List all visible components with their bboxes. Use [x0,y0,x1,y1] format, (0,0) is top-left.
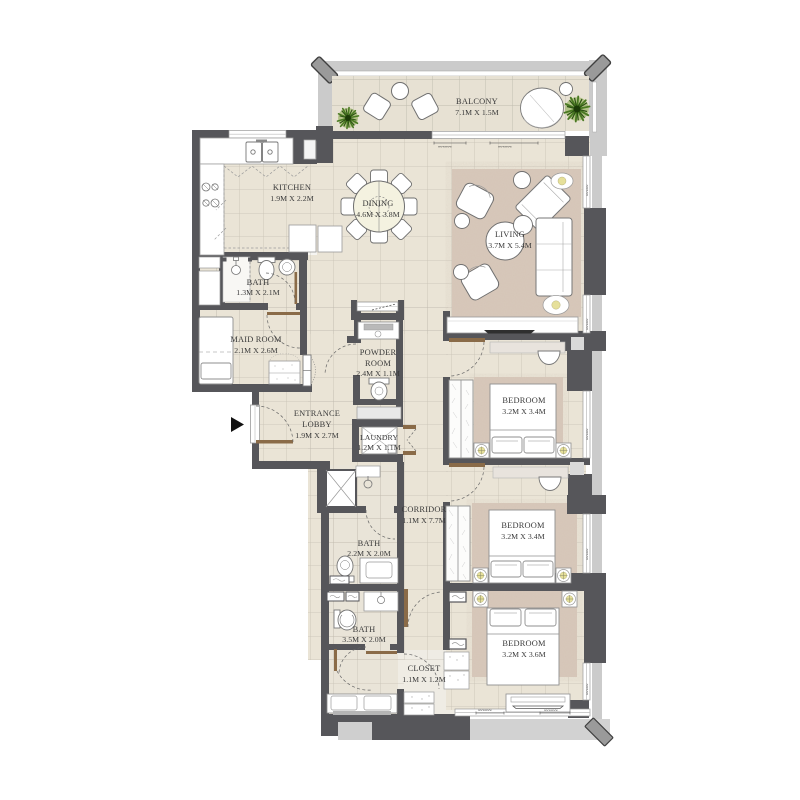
svg-text:7.1M X 1.5M: 7.1M X 1.5M [455,108,498,117]
svg-text:LOBBY: LOBBY [302,420,331,429]
svg-text:CLOSET: CLOSET [408,664,441,673]
svg-text:BATH: BATH [353,625,376,634]
svg-text:1.1M X 7.7M: 1.1M X 7.7M [402,516,445,525]
svg-text:wwwwww: wwwwww [498,145,513,149]
svg-text:1.1M X 1.2M: 1.1M X 1.2M [402,675,445,684]
svg-text:1.2M X 1.1M: 1.2M X 1.1M [357,443,400,452]
svg-text:1.9M X 2.7M: 1.9M X 2.7M [295,431,338,440]
svg-text:MAID ROOM: MAID ROOM [230,335,282,344]
svg-text:BATH: BATH [247,278,270,287]
svg-text:BALCONY: BALCONY [456,97,498,106]
svg-text:3.2M X 3.4M: 3.2M X 3.4M [502,407,545,416]
svg-text:BEDROOM: BEDROOM [502,396,546,405]
svg-text:wwwww: wwwww [585,683,589,695]
svg-text:LAUNDRY: LAUNDRY [360,433,398,442]
svg-text:3.2M X 3.6M: 3.2M X 3.6M [502,650,545,659]
svg-text:DINING: DINING [363,199,394,208]
svg-text:wwwww: wwwww [585,184,589,196]
svg-text:2.2M X 2.0M: 2.2M X 2.0M [347,549,390,558]
svg-text:1.9M X 2.2M: 1.9M X 2.2M [270,194,313,203]
svg-text:BEDROOM: BEDROOM [502,639,546,648]
svg-text:wwwwww: wwwwww [438,145,453,149]
svg-text:4.6M X 3.8M: 4.6M X 3.8M [356,210,399,219]
svg-text:3.2M X 3.4M: 3.2M X 3.4M [501,532,544,541]
svg-text:ROOM: ROOM [365,359,391,368]
svg-text:LIVING: LIVING [495,230,525,239]
svg-text:wwwwww: wwwwww [478,708,493,712]
svg-text:3.7M X 5.4M: 3.7M X 5.4M [488,241,531,250]
svg-text:1.3M X 2.1M: 1.3M X 2.1M [236,288,279,297]
svg-text:wwwww: wwwww [585,548,589,560]
svg-text:wwwww: wwwww [585,318,589,330]
svg-text:2.4M X 1.1M: 2.4M X 1.1M [356,369,399,378]
svg-text:BEDROOM: BEDROOM [501,521,545,530]
svg-text:wwwww: wwwww [585,428,589,440]
svg-text:2.1M X 2.6M: 2.1M X 2.6M [234,346,277,355]
svg-text:KITCHEN: KITCHEN [273,183,311,192]
svg-text:wwwwww: wwwwww [544,708,559,712]
svg-text:ENTRANCE: ENTRANCE [294,409,340,418]
svg-text:CORRIDOR: CORRIDOR [402,505,447,514]
svg-text:POWDER: POWDER [360,348,397,357]
svg-text:3.5M X 2.0M: 3.5M X 2.0M [342,635,385,644]
svg-text:BATH: BATH [358,539,381,548]
